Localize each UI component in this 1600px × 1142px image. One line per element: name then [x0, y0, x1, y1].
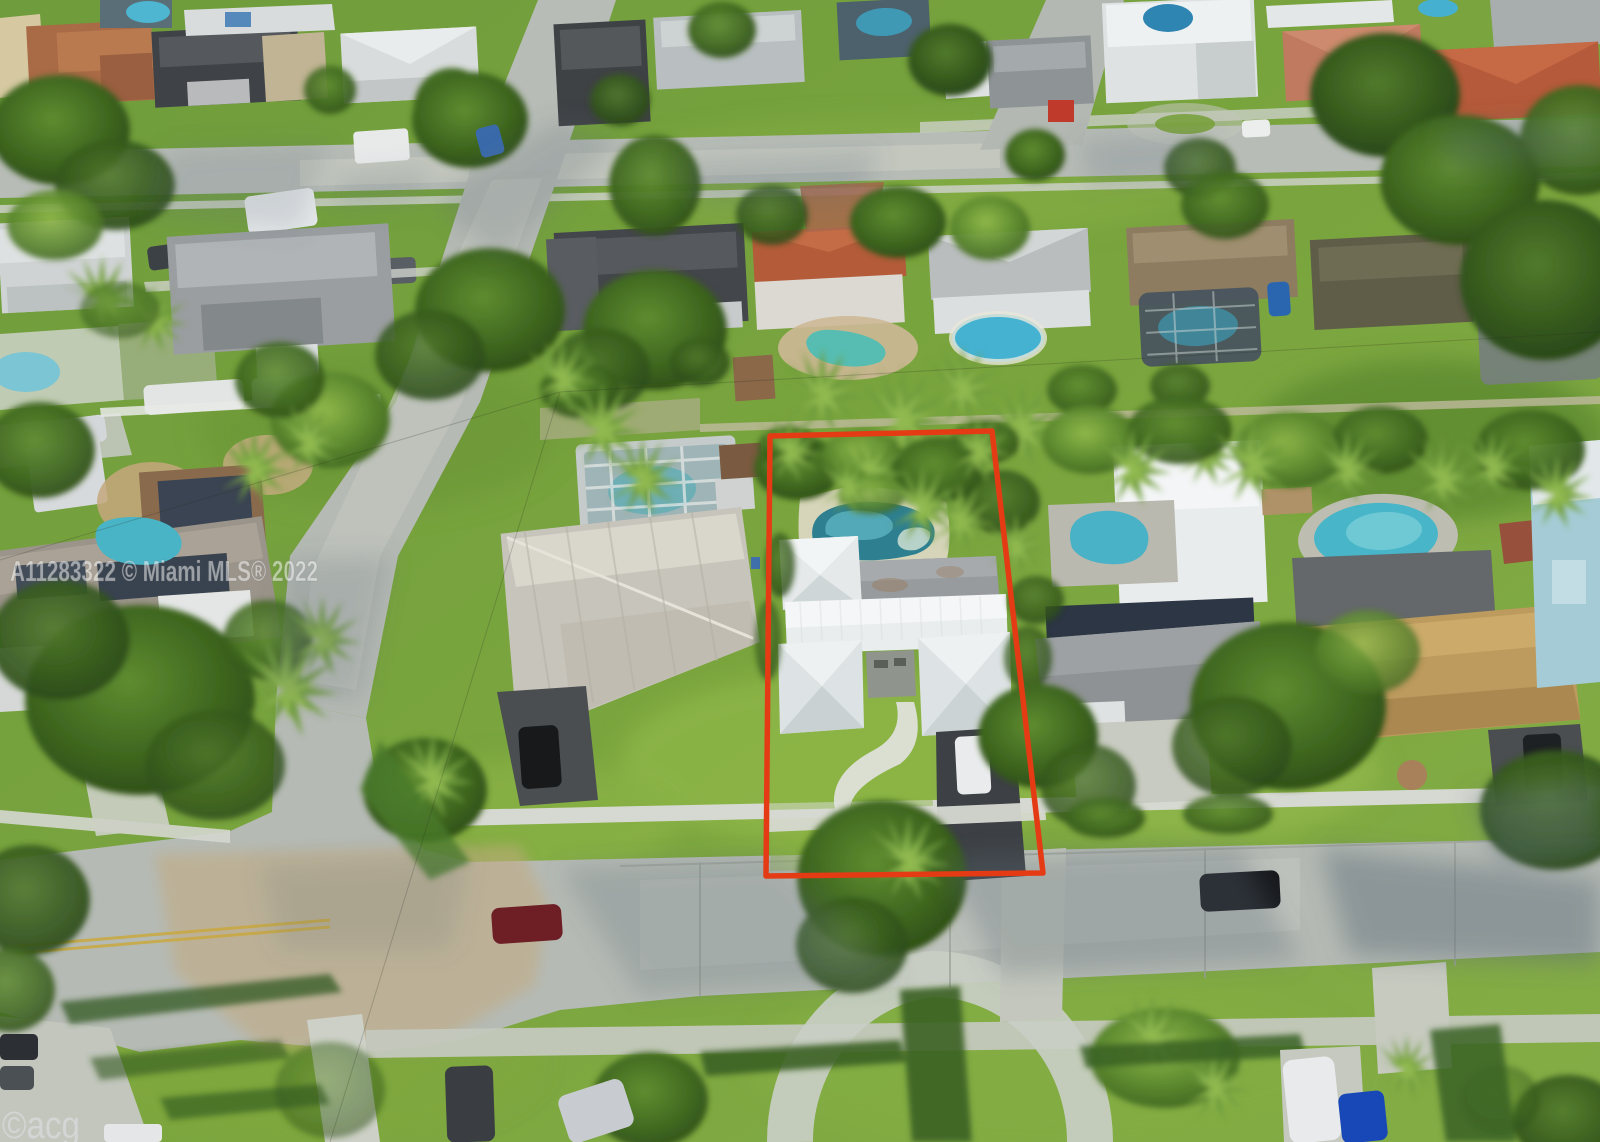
svg-text:©acg: ©acg: [2, 1105, 80, 1142]
svg-text:A11283322 © Miami MLS® 2022: A11283322 © Miami MLS® 2022: [10, 556, 318, 588]
